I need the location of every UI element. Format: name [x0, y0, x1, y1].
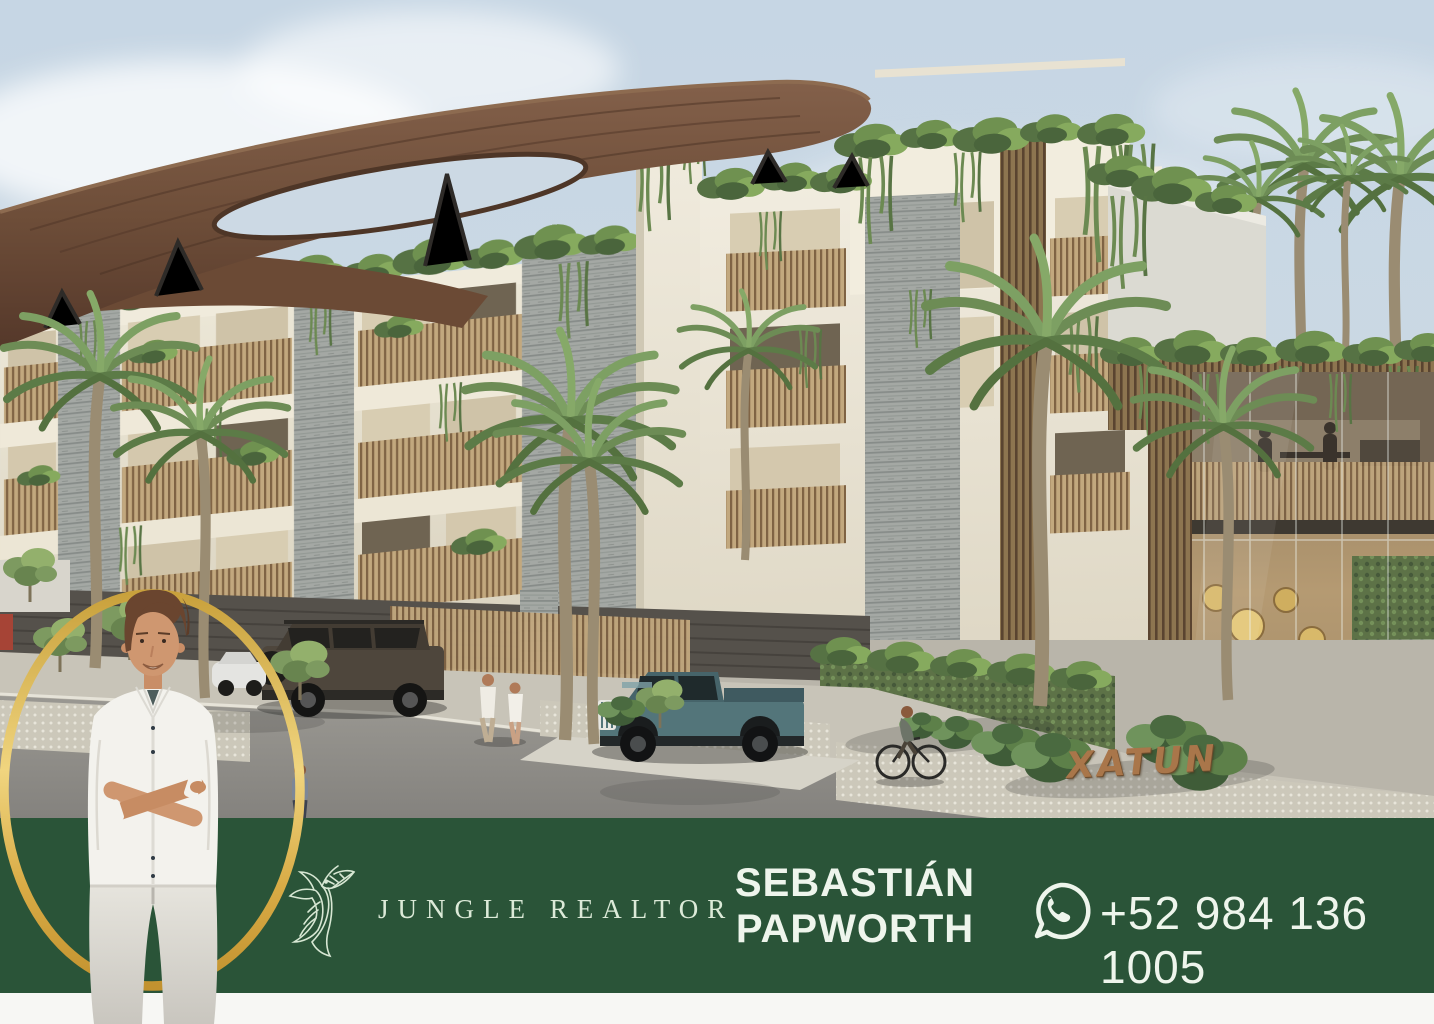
property-sign: XATUN — [1064, 738, 1221, 787]
whatsapp-icon — [1030, 880, 1092, 942]
agent-name: SEBASTIÁN PAPWORTH — [695, 860, 1015, 952]
brand-name: JUNGLE REALTOR — [378, 894, 734, 925]
right-white-tower — [1087, 156, 1266, 369]
agent-portrait — [0, 556, 300, 1024]
phone-number: +52 984 136 1005 — [1100, 886, 1434, 994]
agent-first-name: SEBASTIÁN — [695, 860, 1015, 906]
real-estate-flyer: XATUN JUNGLE REALTOR SEBASTIÁN PAPWORTH … — [0, 0, 1434, 1024]
agent-last-name: PAPWORTH — [695, 906, 1015, 952]
